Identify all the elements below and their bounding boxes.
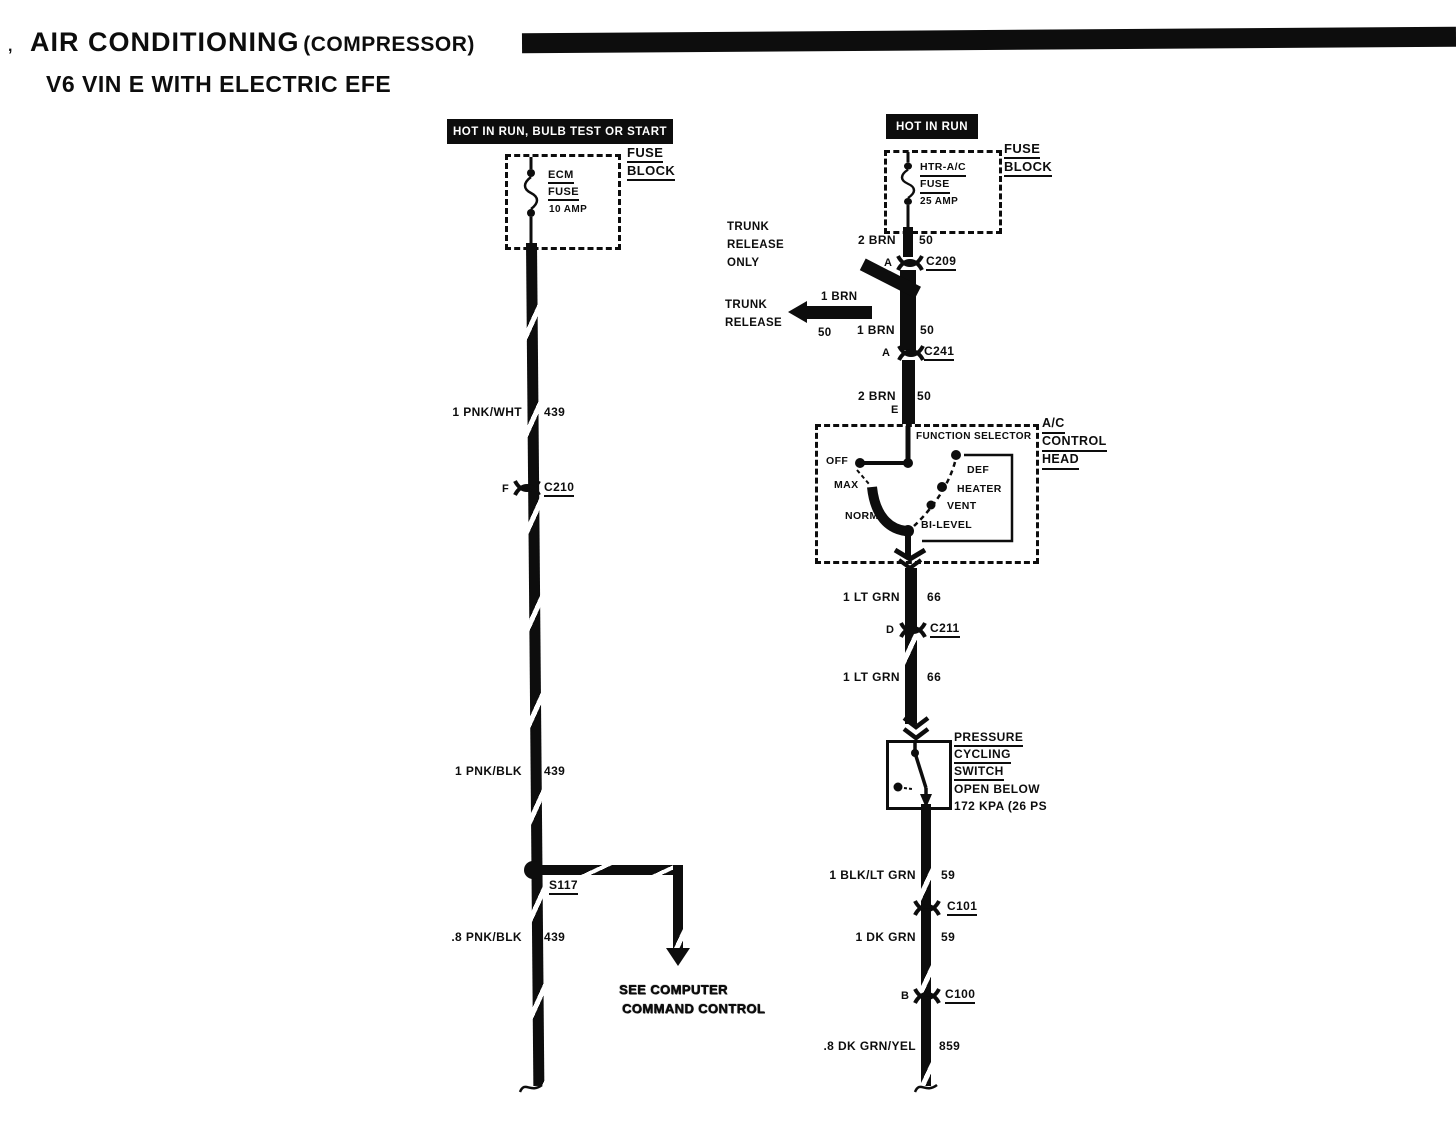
circuit-number-label: 439 [544, 931, 565, 944]
page-subtitle: V6 VIN E WITH ELECTRIC EFE [46, 72, 391, 97]
splice-branch-horizontal [541, 865, 683, 875]
connector-id-label: C100 [945, 988, 975, 1004]
selector-position-vent: VENT [947, 501, 977, 513]
see-note-line1: SEE COMPUTER [619, 983, 728, 997]
trunk-note-line2: RELEASE [727, 239, 784, 252]
circuit-number-label: 50 [917, 390, 931, 403]
fuse-rating: 25 AMP [920, 196, 958, 207]
wire-gauge-label: 1 BLK/LT GRN [820, 869, 916, 882]
circuit-number-label: 439 [544, 765, 565, 778]
connector-id-label: C241 [924, 345, 954, 361]
pressure-switch-label-line5: 172 KPA (26 PS [954, 800, 1047, 813]
wire-gauge-label: 1 BRN [821, 291, 858, 304]
pressure-switch-label-line3: SWITCH [954, 765, 1004, 781]
wiring-diagram-page: , AIR CONDITIONING (COMPRESSOR) V6 VIN E… [0, 0, 1456, 1136]
pressure-switch-label-line1: PRESSURE [954, 731, 1023, 747]
component-label-line2: CONTROL [1042, 435, 1107, 452]
fuse-name-line1: HTR-A/C [920, 162, 966, 177]
selector-position-def: DEF [967, 465, 989, 477]
arrow-down-icon [666, 948, 690, 966]
trunk-note-line3: ONLY [727, 257, 760, 270]
trunk-target-line2: RELEASE [725, 317, 782, 330]
connector-icon [513, 478, 541, 498]
selector-position-norm: NORM [845, 511, 879, 523]
connector-pin-label: B [901, 990, 909, 1002]
connector-pin-label: A [884, 257, 892, 269]
fuse-name-line2: FUSE [920, 179, 950, 194]
fuse-block-label-line2: BLOCK [1004, 160, 1052, 177]
trunk-note-line1: TRUNK [727, 221, 769, 234]
selector-position-max: MAX [834, 480, 859, 492]
splice-dot-icon [524, 861, 542, 879]
wire-gauge-label: 1 LT GRN [838, 591, 900, 604]
circuit-number-label: 59 [941, 869, 955, 882]
wire-brn-to-head [902, 360, 915, 424]
power-banner-left: HOT IN RUN, BULB TEST OR START [447, 119, 673, 144]
page-title: AIR CONDITIONING (COMPRESSOR) [30, 28, 475, 58]
connector-id-label: C211 [930, 622, 960, 638]
see-note-line2: COMMAND CONTROL [622, 1002, 765, 1016]
splice-id-label: S117 [549, 879, 578, 895]
corner-mark: , [8, 38, 13, 56]
fuse-block-label-line1: FUSE [627, 146, 663, 163]
wire-gauge-label: 1 DK GRN [840, 931, 916, 944]
connector-pin-label: F [502, 483, 509, 495]
wire-break-icon [913, 1080, 939, 1094]
connector-id-label: C101 [947, 900, 977, 916]
fuse-rating: 10 AMP [549, 204, 587, 215]
selector-position-off: OFF [826, 456, 848, 468]
circuit-number-label: 66 [927, 591, 941, 604]
arrow-left-icon [788, 301, 807, 323]
pressure-switch-icon [886, 740, 946, 810]
circuit-number-label: 439 [544, 406, 565, 419]
wire-gauge-label: 2 BRN [838, 390, 896, 403]
page-title-main: AIR CONDITIONING [30, 27, 300, 57]
circuit-number-label: 50 [920, 324, 934, 337]
fuse-block-label-line2: BLOCK [627, 164, 675, 181]
connector-icon [913, 898, 941, 918]
wire-gauge-label: 1 PNK/WHT [430, 406, 522, 419]
wire-gauge-label: .8 PNK/BLK [425, 931, 522, 944]
circuit-number-label: 50 [818, 327, 832, 340]
header-divider-bar [522, 27, 1456, 54]
connector-icon [913, 986, 941, 1006]
wire-gauge-label: 2 BRN [838, 234, 896, 247]
fuse-icon [896, 152, 920, 228]
wire-pnk-left [526, 243, 544, 1086]
circuit-number-label: 66 [927, 671, 941, 684]
wire-gauge-label: 1 BRN [845, 324, 895, 337]
wire-gauge-label: 1 LT GRN [838, 671, 900, 684]
power-banner-right: HOT IN RUN [886, 114, 978, 139]
splice-branch-vertical [673, 865, 683, 950]
fuse-icon [519, 157, 543, 243]
wire-dk-grn [921, 804, 931, 1086]
connector-id-label: C210 [544, 481, 574, 497]
wire-break-icon [518, 1080, 544, 1094]
fuse-name-line2: FUSE [548, 186, 579, 201]
component-label-line3: HEAD [1042, 453, 1079, 470]
circuit-number-label: 50 [919, 234, 933, 247]
connector-icon [899, 620, 927, 640]
connector-pin-label: A [882, 347, 890, 359]
selector-position-heater: HEATER [957, 484, 1002, 496]
component-label-line1: A/C [1042, 417, 1065, 434]
circuit-number-label: 859 [939, 1040, 960, 1053]
selector-position-bilevel: BI-LEVEL [921, 520, 972, 532]
pressure-switch-label-line4: OPEN BELOW [954, 783, 1040, 796]
connector-pin-label: D [886, 624, 894, 636]
wire-gauge-label: .8 DK GRN/YEL [814, 1040, 916, 1053]
wire-gauge-label: 1 PNK/BLK [430, 765, 522, 778]
wire-lt-grn [905, 568, 917, 724]
fuse-name-line1: ECM [548, 169, 574, 184]
circuit-number-label: 59 [941, 931, 955, 944]
trunk-target-line1: TRUNK [725, 299, 767, 312]
fuse-block-label-line1: FUSE [1004, 142, 1040, 159]
page-title-paren: (COMPRESSOR) [303, 33, 475, 56]
connector-pin-label: E [891, 404, 899, 416]
wire-entry-chevrons-icon [901, 716, 931, 740]
connector-id-label: C209 [926, 255, 956, 271]
pressure-switch-label-line2: CYCLING [954, 748, 1011, 764]
trunk-branch-bar [806, 306, 872, 319]
